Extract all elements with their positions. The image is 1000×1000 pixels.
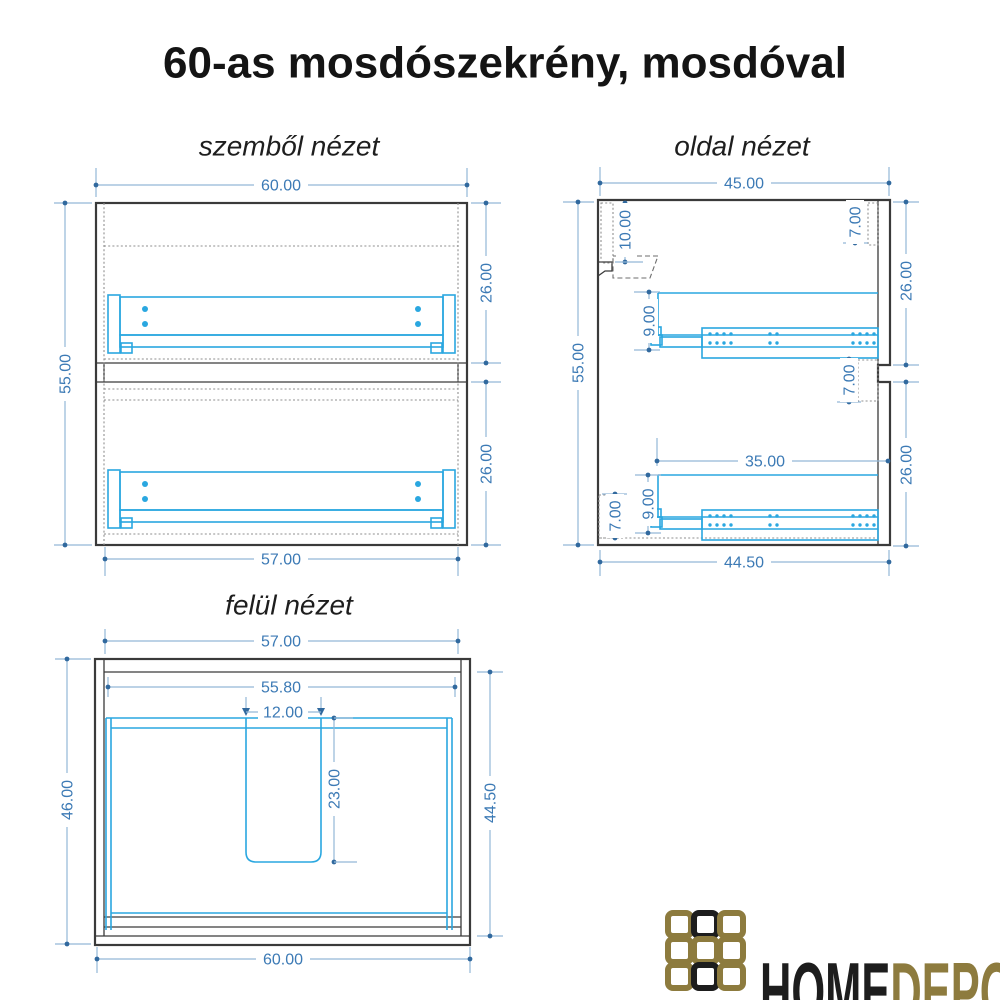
basin-overhang-outline [613,256,658,278]
dim-label: 60.00 [261,178,301,195]
dim-side-mid-inset: 7.00 [837,357,861,405]
side-lower-drawer [651,475,878,540]
dim-label: 26.00 [899,261,916,301]
dim-label: 10.00 [618,210,635,250]
dim-front-lower-drawer: 26.00 [471,380,501,548]
dim-top-outer-width: 60.00 [95,947,473,973]
dim-label: 44.50 [724,555,764,572]
dim-label: 7.00 [608,500,625,531]
drawing-canvas: 60-as mosdószekrény, mosdóval szemből né… [0,0,1000,1000]
side-view-label: oldal nézet [674,131,811,162]
dim-side-bottom-inset: 7.00 [602,492,627,541]
dim-side-lower-rail: 9.00 [635,473,661,536]
dim-label: 26.00 [479,444,496,484]
dim-label: 9.00 [641,488,658,519]
dim-label: 55.00 [58,354,75,394]
dim-front-outer-height: 55.00 [54,201,92,548]
dim-side-top-inset: 7.00 [843,200,868,245]
front-view: szemből nézet 60.00 [54,131,501,577]
side-view: oldal nézet 45.00 [563,131,919,577]
dim-side-lower-front-height: 26.00 [893,380,919,549]
dim-side-upper-rail: 9.00 [634,290,660,353]
dim-label: 57.00 [261,634,301,651]
top-carcass [95,659,470,945]
dim-label: 60.00 [263,952,303,969]
side-upper-drawer [651,293,878,358]
dim-front-inner-width: 57.00 [103,547,461,576]
dim-label: 46.00 [60,780,77,820]
top-view-label: felül nézet [225,590,354,621]
logo-wordmark: HOMEDEPO [760,945,1000,1000]
logo-grid-icon [668,913,743,988]
top-basin-outline [106,718,452,930]
logo-word-home: HOME [760,945,890,1000]
dim-label: 26.00 [899,445,916,485]
logo-word-depo: DEPO [890,945,1000,1000]
dim-label: 9.00 [642,305,659,336]
dim-top-inner-width: 57.00 [103,629,461,654]
front-carcass [96,203,467,545]
sink-cutout [246,718,321,862]
dim-label: 57.00 [261,552,301,569]
dim-label: 55.80 [261,680,301,697]
dim-side-back-rail: 10.00 [615,201,643,265]
front-upper-drawer [108,295,455,353]
wall-bracket [598,262,612,276]
front-view-label: szemből nézet [199,131,381,162]
dim-side-outer-height: 55.00 [563,200,594,548]
dim-top-inner-depth: 44.50 [477,670,503,939]
dim-front-upper-drawer: 26.00 [471,201,501,366]
dim-label: 45.00 [724,176,764,193]
dim-label: 7.00 [848,206,865,237]
page-title: 60-as mosdószekrény, mosdóval [163,39,847,88]
dim-top-clear-width: 55.80 [106,677,458,697]
dim-front-outer-width: 60.00 [94,168,470,197]
dim-label: 12.00 [263,705,303,722]
dim-side-slide-length: 35.00 [655,438,891,471]
dim-label: 26.00 [479,263,496,303]
dim-label: 44.50 [483,783,500,823]
dim-label: 55.00 [571,343,588,383]
dim-side-inner-depth: 44.50 [598,550,892,576]
dim-top-outer-depth: 46.00 [55,657,91,947]
technical-drawing-page: 60-as mosdószekrény, mosdóval szemből né… [0,0,1000,1000]
top-view: felül nézet 57.00 [55,590,503,974]
dim-label: 23.00 [327,769,344,809]
dim-label: 7.00 [842,364,859,395]
dim-label: 35.00 [745,454,785,471]
dim-top-sink-depth: 23.00 [325,716,357,865]
dim-side-upper-front-height: 26.00 [893,200,919,368]
dim-side-outer-depth: 45.00 [598,167,892,196]
front-lower-drawer [108,470,455,528]
homedepo-logo: HOMEDEPO [668,913,1000,1000]
front-hidden-lines [104,203,458,545]
